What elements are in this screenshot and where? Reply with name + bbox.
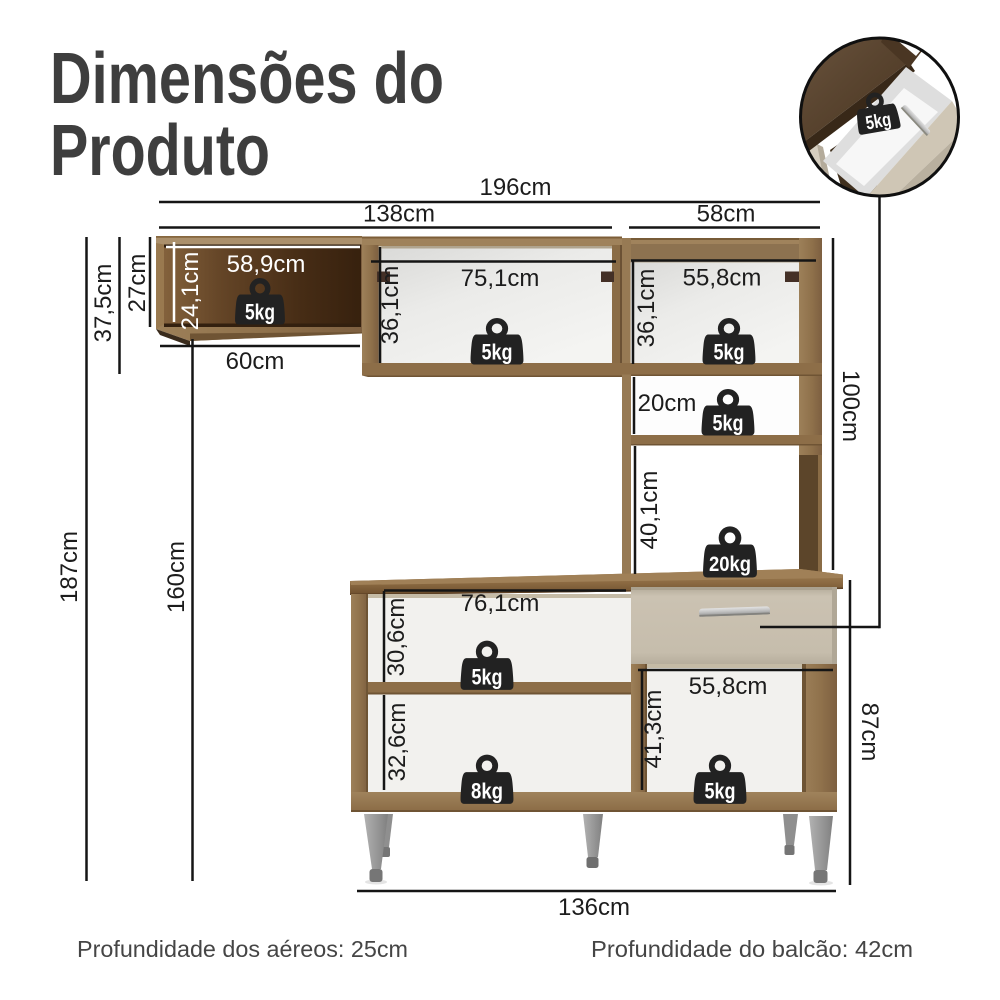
svg-text:55,8cm: 55,8cm [683, 265, 762, 292]
svg-text:20cm: 20cm [638, 390, 697, 417]
svg-text:27cm: 27cm [124, 254, 151, 313]
svg-text:55,8cm: 55,8cm [689, 673, 768, 700]
svg-text:8kg: 8kg [471, 779, 503, 804]
svg-text:5kg: 5kg [482, 340, 513, 365]
svg-text:5kg: 5kg [472, 665, 503, 690]
svg-text:20kg: 20kg [709, 552, 751, 576]
svg-text:136cm: 136cm [558, 894, 630, 921]
svg-text:37,5cm: 37,5cm [90, 264, 117, 343]
svg-text:187cm: 187cm [56, 531, 83, 603]
svg-text:41,3cm: 41,3cm [640, 690, 667, 769]
svg-text:Profundidade do balcão: 42cm: Profundidade do balcão: 42cm [591, 936, 913, 962]
svg-text:76,1cm: 76,1cm [461, 590, 540, 617]
svg-text:32,6cm: 32,6cm [384, 703, 411, 782]
svg-text:58,9cm: 58,9cm [227, 251, 306, 278]
svg-text:5kg: 5kg [245, 300, 275, 325]
svg-text:5kg: 5kg [705, 779, 736, 804]
svg-text:36,1cm: 36,1cm [633, 269, 660, 348]
svg-text:160cm: 160cm [163, 541, 190, 613]
svg-text:24,1cm: 24,1cm [177, 252, 204, 331]
svg-text:5kg: 5kg [714, 340, 745, 365]
svg-text:75,1cm: 75,1cm [461, 265, 540, 292]
svg-text:36,1cm: 36,1cm [377, 266, 404, 345]
svg-text:30,6cm: 30,6cm [383, 598, 410, 677]
svg-text:40,1cm: 40,1cm [636, 471, 663, 550]
svg-text:58cm: 58cm [697, 201, 756, 228]
svg-text:60cm: 60cm [226, 348, 285, 375]
svg-text:100cm: 100cm [837, 370, 864, 442]
svg-text:5kg: 5kg [713, 411, 744, 436]
svg-text:Dimensões do: Dimensões do [50, 39, 444, 119]
svg-text:Profundidade dos aéreos: 25cm: Profundidade dos aéreos: 25cm [77, 936, 408, 962]
svg-text:138cm: 138cm [363, 201, 435, 228]
svg-text:Produto: Produto [50, 111, 270, 191]
svg-text:5kg: 5kg [864, 109, 893, 134]
svg-text:196cm: 196cm [479, 174, 551, 201]
svg-text:87cm: 87cm [856, 703, 883, 762]
